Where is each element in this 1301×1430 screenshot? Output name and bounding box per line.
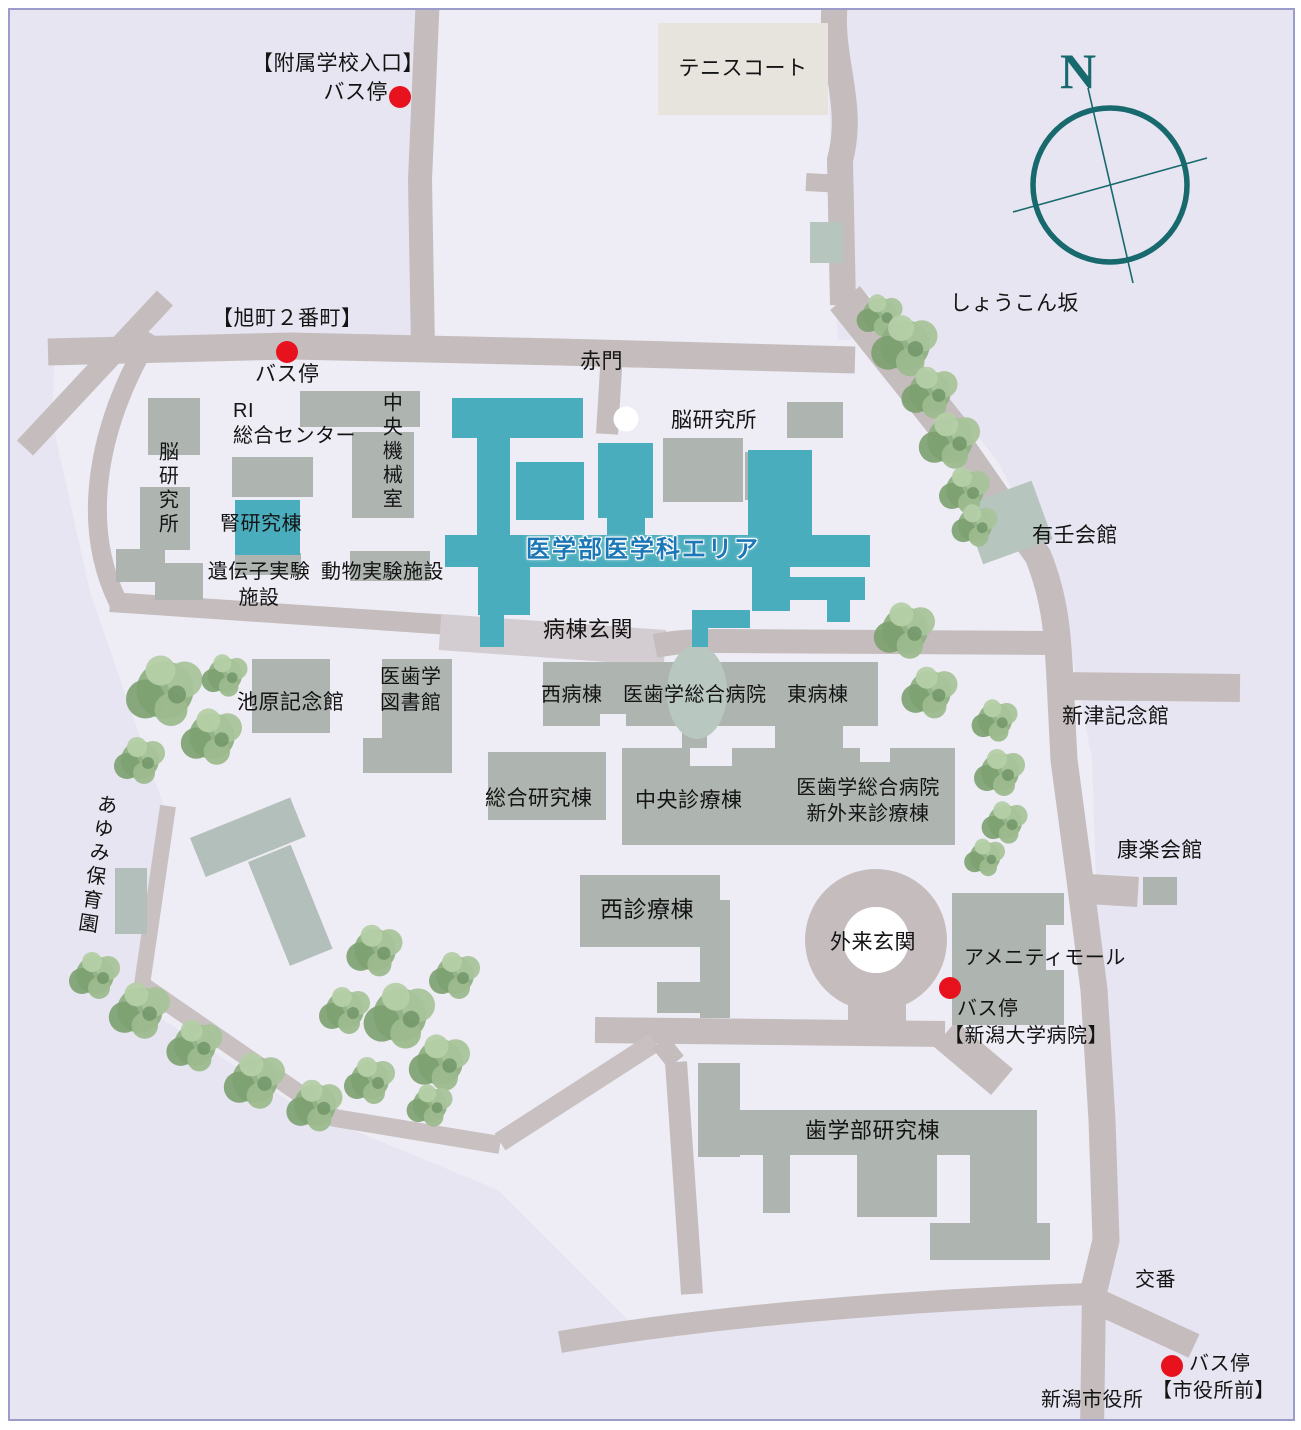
label-byoto-genkan: 病棟玄関 <box>543 615 633 644</box>
label-chuo-shinryo: 中央診療棟 <box>635 787 743 815</box>
label-ikehara: 池原記念館 <box>237 689 345 717</box>
campus-map: 【附属学校入口】 バス停 テニスコート 【旭町２番町】 バス停 赤門 RI 総合… <box>0 0 1301 1430</box>
label-shiyakusho: 新潟市役所 <box>1041 1387 1144 1413</box>
label-gairai-genkan: 外来玄関 <box>830 929 916 957</box>
label-jinken: 腎研究棟 <box>220 511 302 537</box>
label-shiyakusho-bus-name: 【市役所前】 <box>1152 1378 1275 1404</box>
label-noken-left: 脳研究所 <box>153 441 179 537</box>
label-yujin-kaikan: 有壬会館 <box>1032 522 1118 550</box>
label-sogo-kenkyu: 総合研究棟 <box>485 785 593 813</box>
label-fuzoku-bus-stop: バス停 <box>180 79 388 107</box>
bus-stop-dot-asahimachi <box>276 341 298 363</box>
map-frame: 【附属学校入口】 バス停 テニスコート 【旭町２番町】 バス停 赤門 RI 総合… <box>8 8 1295 1421</box>
label-amenity-mall: アメニティモール <box>964 945 1126 971</box>
label-byoin-bus-stop: バス停 <box>957 996 1019 1022</box>
label-fuzoku-gakko-entrance: 【附属学校入口】 <box>180 50 424 78</box>
label-shiyakusho-bus-stop: バス停 <box>1189 1351 1251 1377</box>
label-shokonzaka: しょうこん坂 <box>950 290 1079 318</box>
akamon-gate-marker <box>614 407 639 432</box>
bus-stop-dot-fuzoku <box>389 86 411 108</box>
label-koban: 交番 <box>1135 1267 1176 1293</box>
label-dobutsu: 動物実験施設 <box>321 559 444 585</box>
compass-north-label: N <box>1060 38 1096 104</box>
label-akamon-gate: 赤門 <box>580 348 623 376</box>
label-niitsu: 新津記念館 <box>1062 703 1170 731</box>
label-chuo-kikai: 中央機械室 <box>377 392 403 512</box>
label-shin-gairai: 医歯学総合病院 新外来診療棟 <box>778 775 958 828</box>
label-hospital-wards: 西病棟 医歯学総合病院 東病棟 <box>541 682 849 708</box>
compass-icon <box>1013 88 1207 283</box>
label-ri-center: RI 総合センター <box>233 399 356 449</box>
label-tennis-court: テニスコート <box>658 23 828 115</box>
label-byoin-bus-name: 【新潟大学病院】 <box>944 1023 1108 1049</box>
label-koraku: 康楽会館 <box>1117 837 1203 865</box>
label-idenshi: 遺伝子実験 施設 <box>198 559 320 612</box>
label-noken-right: 脳研究所 <box>671 407 757 435</box>
label-shigakubu: 歯学部研究棟 <box>805 1116 940 1145</box>
label-library: 医歯学 図書館 <box>380 665 442 716</box>
label-nishi-shinryo: 西診療棟 <box>600 894 694 924</box>
label-asahimachi: 【旭町２番町】 <box>212 305 363 333</box>
label-igakubu-area: 医学部医学科エリア <box>526 534 760 566</box>
label-asahimachi-bus-stop: バス停 <box>255 361 320 389</box>
bus-stop-dot-shiyakusho <box>1161 1355 1183 1377</box>
